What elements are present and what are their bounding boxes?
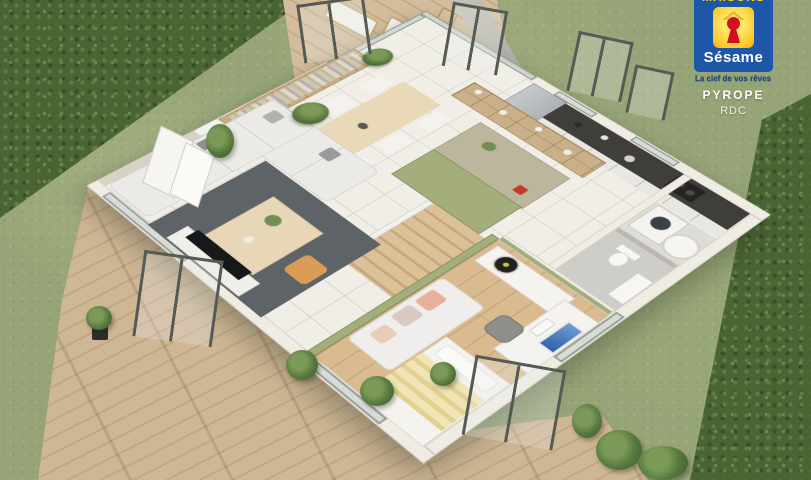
brand-top-text: MAISONS: [694, 0, 773, 4]
window-frame: [442, 2, 508, 76]
living-door-frame: [132, 250, 223, 347]
floor-label: RDC: [694, 105, 773, 117]
potted-plant-leaves: [86, 306, 112, 330]
project-name: PYROPE: [694, 88, 773, 102]
grass-tuft: [572, 404, 602, 438]
terrace-door-frame: [296, 0, 372, 63]
keyhole-icon: [713, 7, 754, 48]
grass-tuft: [286, 350, 318, 380]
brand-logo: MAISONS Sésame: [694, 0, 773, 72]
brand-tagline: La clef de vos rêves: [683, 74, 783, 83]
outdoor-plant: [206, 124, 234, 158]
bush: [638, 446, 688, 480]
grass-tuft: [360, 376, 394, 406]
bush: [430, 362, 456, 386]
bush: [596, 430, 642, 470]
bedroom-window-frame: [462, 355, 567, 451]
brand-name: Sésame: [694, 49, 773, 66]
